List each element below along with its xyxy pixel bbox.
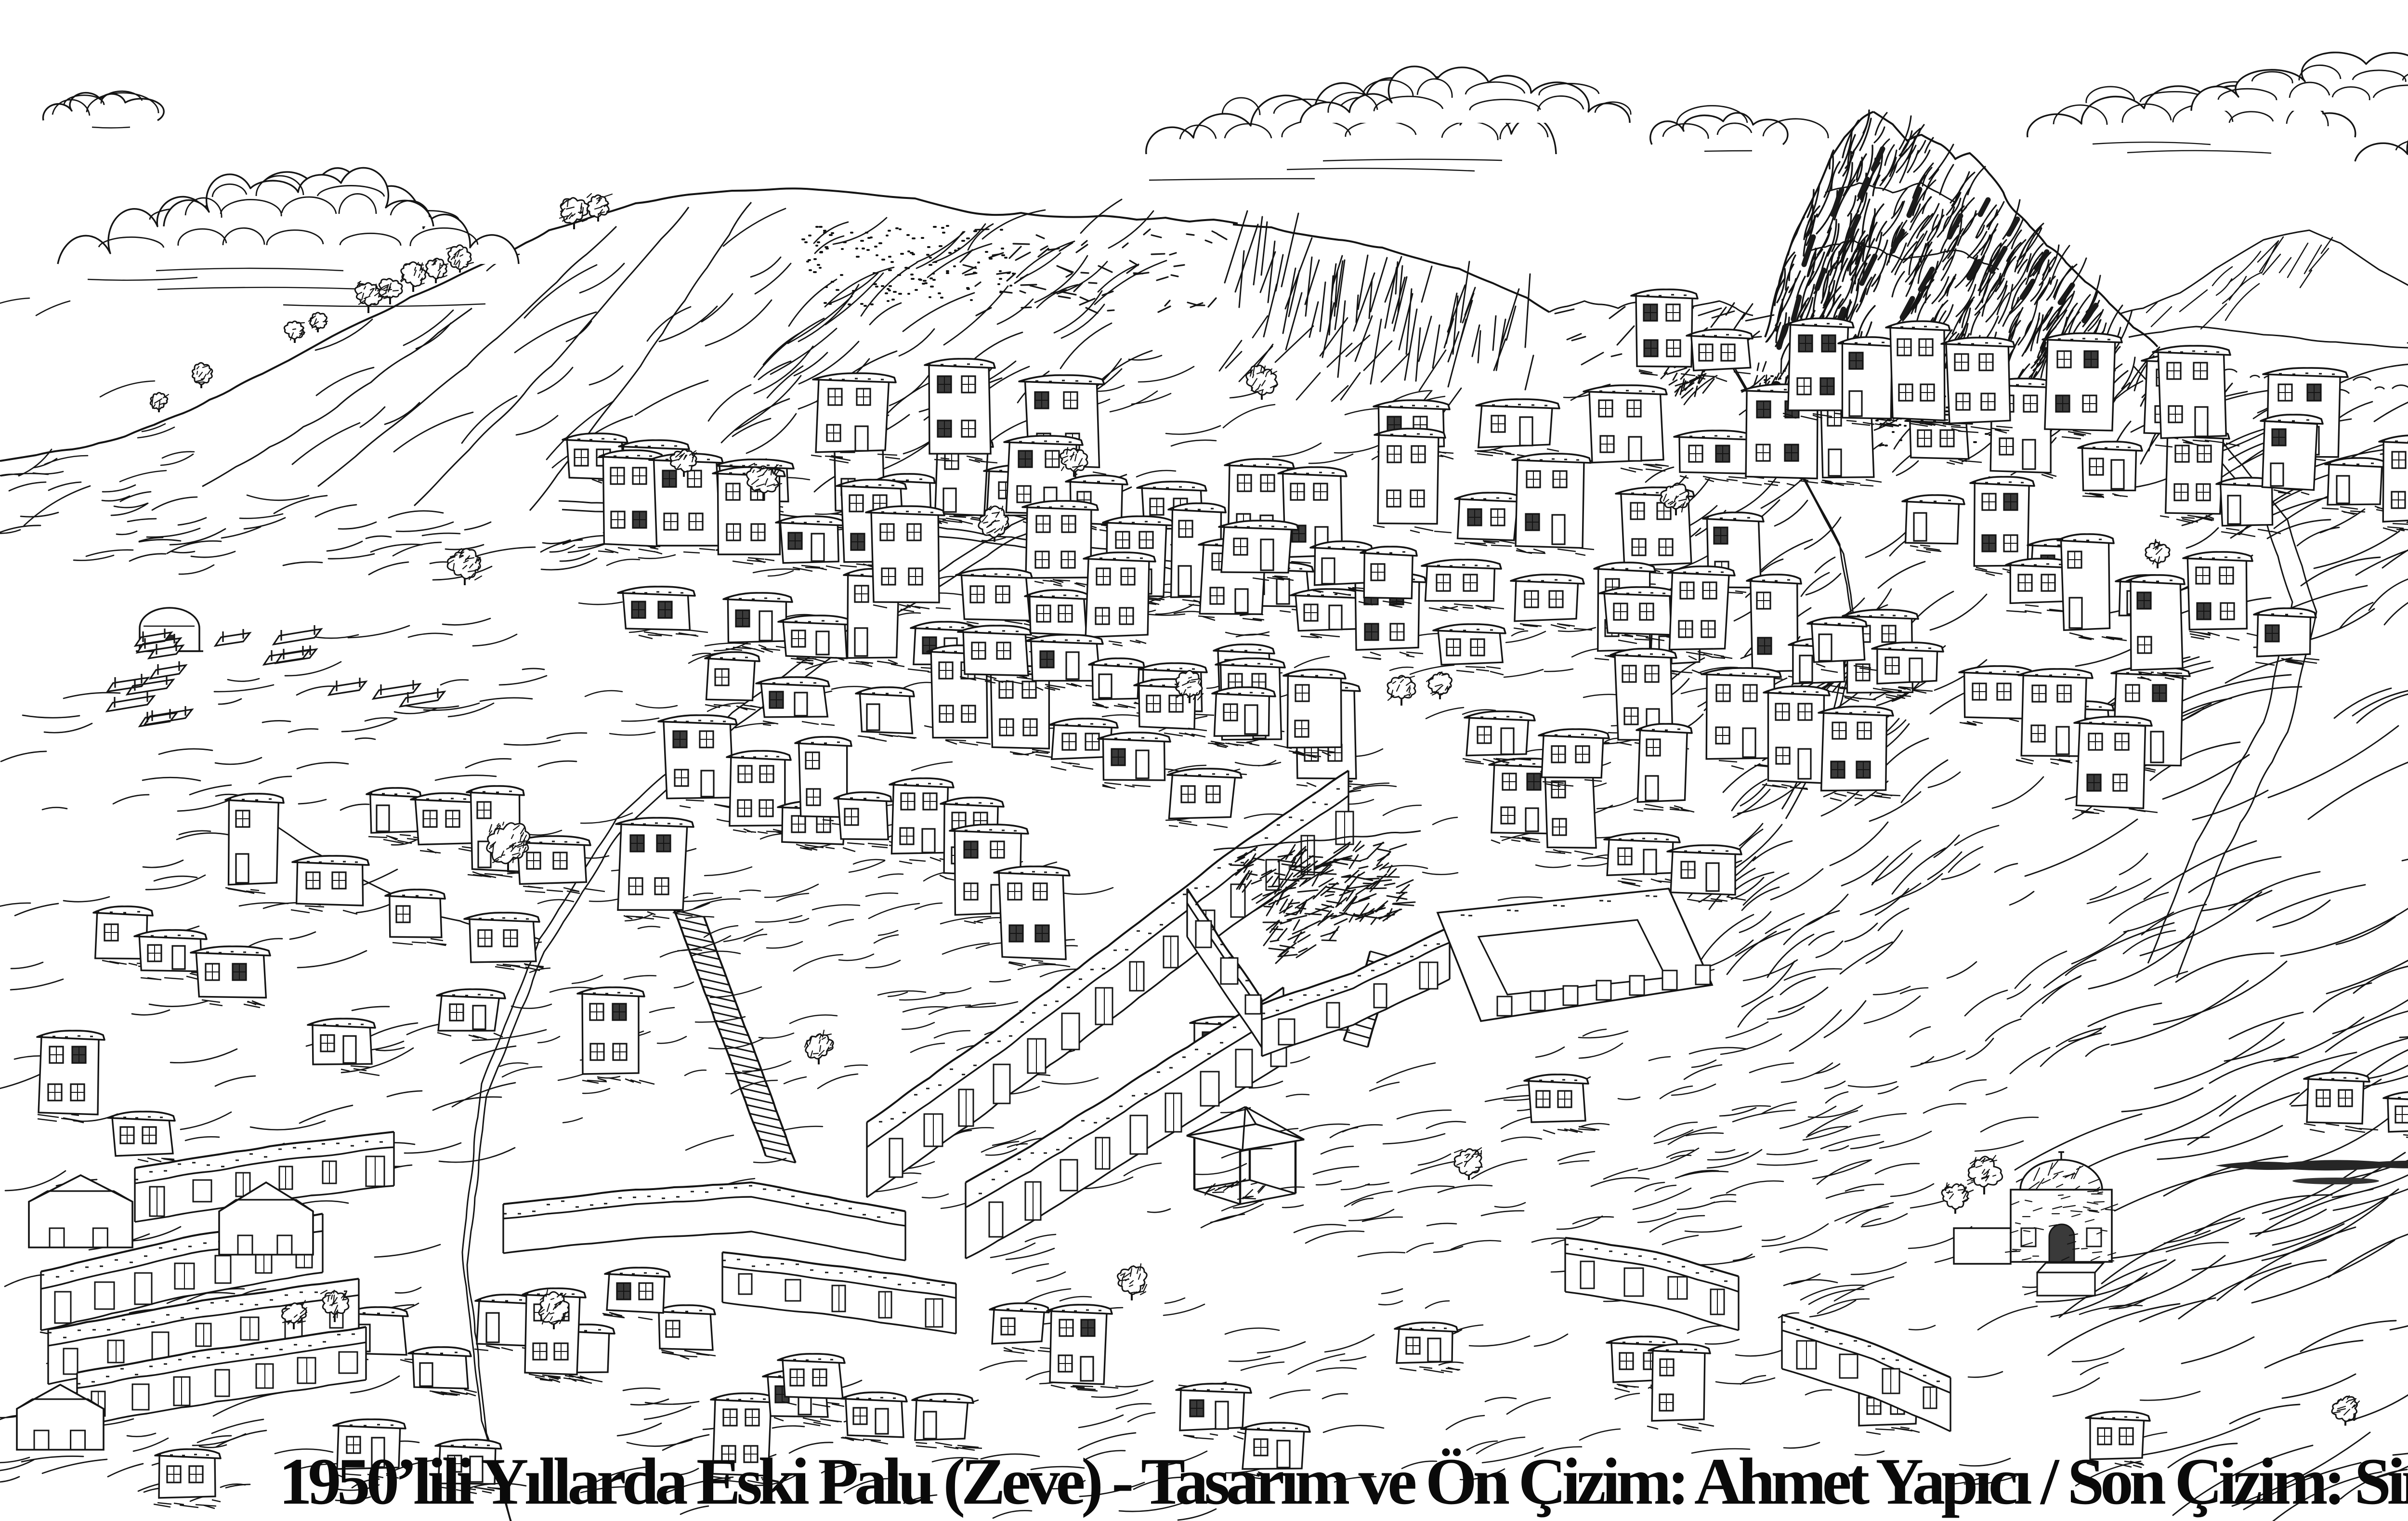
- svg-text:1950’lili Yıllarda Eski Palu (: 1950’lili Yıllarda Eski Palu (Zeve) - Ta…: [279, 1444, 2408, 1518]
